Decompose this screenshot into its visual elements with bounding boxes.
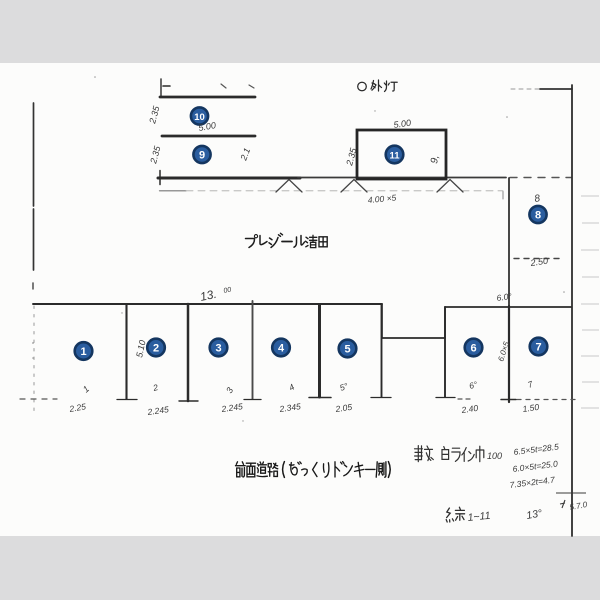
svg-text:3: 3 [224, 386, 235, 395]
svg-text:2.25: 2.25 [68, 401, 87, 414]
svg-text:100: 100 [487, 451, 502, 461]
svg-text:5.00: 5.00 [198, 120, 217, 133]
svg-text:2.50: 2.50 [529, 256, 549, 268]
svg-text:2.40: 2.40 [460, 403, 479, 415]
svg-text:7.35×2t=4.7: 7.35×2t=4.7 [509, 474, 556, 489]
svg-text:8: 8 [535, 210, 541, 222]
svg-text:5°: 5° [338, 380, 350, 392]
svg-text:5.00: 5.00 [393, 118, 412, 130]
svg-text:4: 4 [287, 382, 296, 393]
svg-text:2: 2 [153, 343, 159, 355]
svg-text:7: 7 [526, 379, 534, 390]
svg-text:2.1: 2.1 [238, 147, 252, 163]
svg-text:2.245: 2.245 [220, 401, 244, 414]
svg-text:8: 8 [534, 193, 542, 205]
svg-text:2.245: 2.245 [146, 404, 170, 417]
svg-text:6.0×5t=25.0: 6.0×5t=25.0 [512, 458, 559, 473]
svg-text:6: 6 [470, 343, 476, 355]
svg-text:00: 00 [223, 286, 232, 294]
svg-text:2.35: 2.35 [148, 144, 163, 165]
svg-text:5.10: 5.10 [134, 339, 147, 358]
svg-text:7: 7 [535, 342, 541, 354]
svg-text:6.5×5t=28.5: 6.5×5t=28.5 [513, 441, 560, 456]
svg-text:11: 11 [389, 151, 400, 162]
svg-text:9: 9 [199, 150, 205, 162]
svg-text:1~11: 1~11 [467, 510, 491, 524]
svg-text:9,: 9, [429, 154, 441, 164]
svg-text:4.00 ×5: 4.00 ×5 [367, 193, 397, 205]
svg-text:2: 2 [151, 382, 159, 393]
svg-text:13.: 13. [199, 287, 218, 304]
svg-text:5.7.0: 5.7.0 [569, 500, 589, 512]
svg-text:1: 1 [80, 346, 86, 358]
svg-text:5: 5 [344, 344, 350, 356]
svg-text:2.35: 2.35 [147, 104, 162, 125]
svg-text:6.0°: 6.0° [496, 291, 513, 303]
svg-text:2.05: 2.05 [334, 402, 353, 414]
svg-text:13°: 13° [525, 507, 543, 522]
svg-text:2.345: 2.345 [278, 401, 302, 414]
svg-text:1.50: 1.50 [522, 402, 540, 414]
svg-text:1: 1 [81, 384, 91, 395]
svg-text:4: 4 [278, 343, 285, 355]
svg-text:6°: 6° [468, 379, 479, 391]
svg-text:3: 3 [215, 343, 221, 355]
